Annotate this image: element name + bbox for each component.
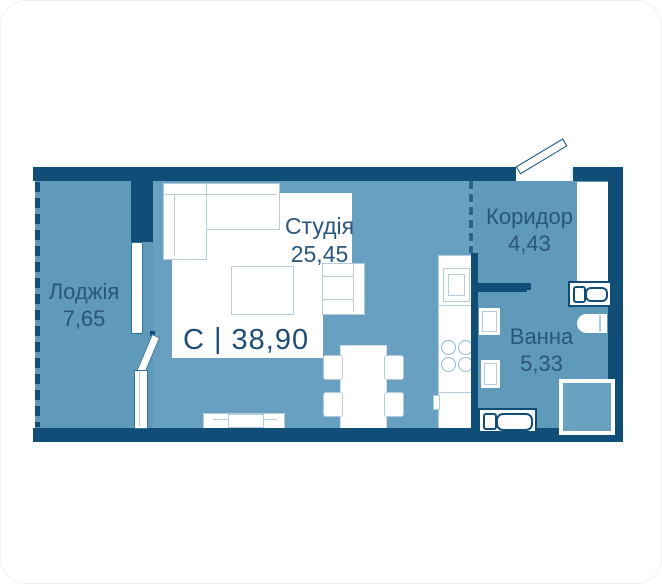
shower-icon <box>559 379 615 435</box>
balcony-window-icon <box>134 370 148 429</box>
tv-icon <box>228 414 264 428</box>
room-name: Коридор <box>467 203 592 230</box>
wall-top <box>573 167 623 181</box>
dining-chair-icon <box>384 355 404 380</box>
room-name: Лоджія <box>24 278 144 305</box>
coffee-table-icon <box>231 266 294 315</box>
divider-bar: | <box>214 326 223 353</box>
cooktop-burner-icon <box>441 340 456 355</box>
sofa-backrest-line <box>165 194 276 195</box>
washer-drum-icon <box>496 413 533 431</box>
dining-chair-icon <box>323 355 343 380</box>
loggia-label: Лоджія 7,65 <box>24 278 144 332</box>
room-area: 4,43 <box>467 230 592 257</box>
dining-chair-icon <box>384 392 404 417</box>
counter-divider-line <box>439 392 472 393</box>
cooktop-burner-icon <box>441 357 456 372</box>
floor-plan-card: Лоджія 7,65 Студія 25,45 Коридор 4,43 Ва… <box>0 0 662 584</box>
corridor-label: Коридор 4,43 <box>467 203 592 257</box>
washing-machine-icon <box>478 408 537 433</box>
wall-corridor-bathroom <box>478 283 527 292</box>
room-area: 5,33 <box>479 350 604 377</box>
wall-top <box>33 167 516 181</box>
armchair-back-line <box>353 264 354 312</box>
armchair-armrest-line <box>323 299 353 300</box>
total-area-value: 38,90 <box>232 327 310 354</box>
window-frame-line <box>139 371 140 426</box>
apartment-type-code: С <box>183 327 205 354</box>
total-area-label: С | 38,90 <box>183 327 309 354</box>
bathroom-door-hinge <box>526 283 531 290</box>
sink-basin-icon <box>585 287 608 302</box>
sofa-armrest-line <box>174 194 175 256</box>
studio-label: Студія 25,45 <box>257 212 382 268</box>
room-name: Ванна <box>479 323 604 350</box>
room-area: 25,45 <box>257 240 382 268</box>
counter-divider-line <box>439 305 472 306</box>
wall-loggia-partition <box>131 181 153 242</box>
washer-control-icon <box>483 413 497 430</box>
bathroom-label: Ванна 5,33 <box>479 323 604 377</box>
wall-kitchen-bathroom <box>471 253 478 428</box>
counter-handle <box>433 395 440 410</box>
dining-table-icon <box>340 345 387 430</box>
dining-chair-icon <box>323 392 343 417</box>
armchair-armrest-line <box>323 276 353 277</box>
entrance-door-frame <box>570 168 573 181</box>
kitchen-sink-basin <box>448 274 465 296</box>
entrance-door-leaf-icon <box>516 138 568 174</box>
room-area: 7,65 <box>24 305 144 332</box>
armchair-icon <box>322 263 365 315</box>
vanity-sink-icon <box>568 281 612 307</box>
room-name: Студія <box>257 212 382 240</box>
